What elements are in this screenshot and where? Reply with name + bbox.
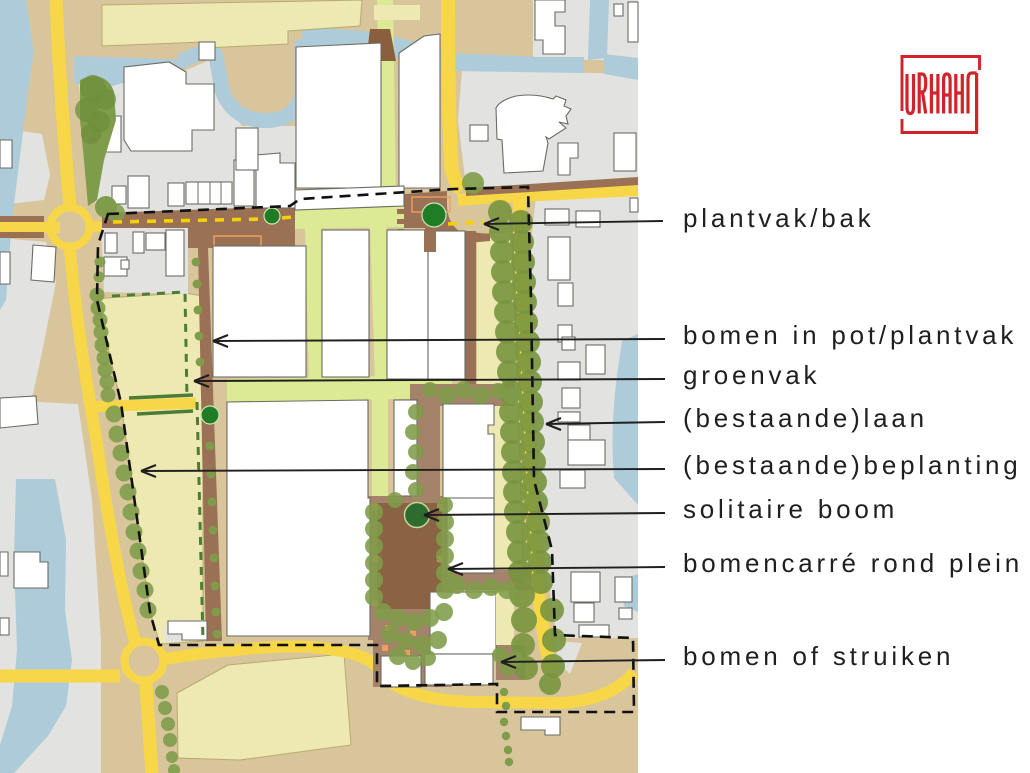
svg-text:bomencarré rond plein: bomencarré rond plein xyxy=(683,548,1023,578)
svg-text:plantvak/bak: plantvak/bak xyxy=(683,203,875,233)
svg-text:bomen in pot/plantvak: bomen in pot/plantvak xyxy=(683,320,1017,350)
svg-text:bomen of struiken: bomen of struiken xyxy=(683,641,954,671)
svg-text:(bestaande)laan: (bestaande)laan xyxy=(683,403,928,433)
svg-text:(bestaande)beplanting: (bestaande)beplanting xyxy=(683,450,1022,480)
svg-text:groenvak: groenvak xyxy=(683,360,820,390)
svg-text:solitaire boom: solitaire boom xyxy=(683,494,898,524)
